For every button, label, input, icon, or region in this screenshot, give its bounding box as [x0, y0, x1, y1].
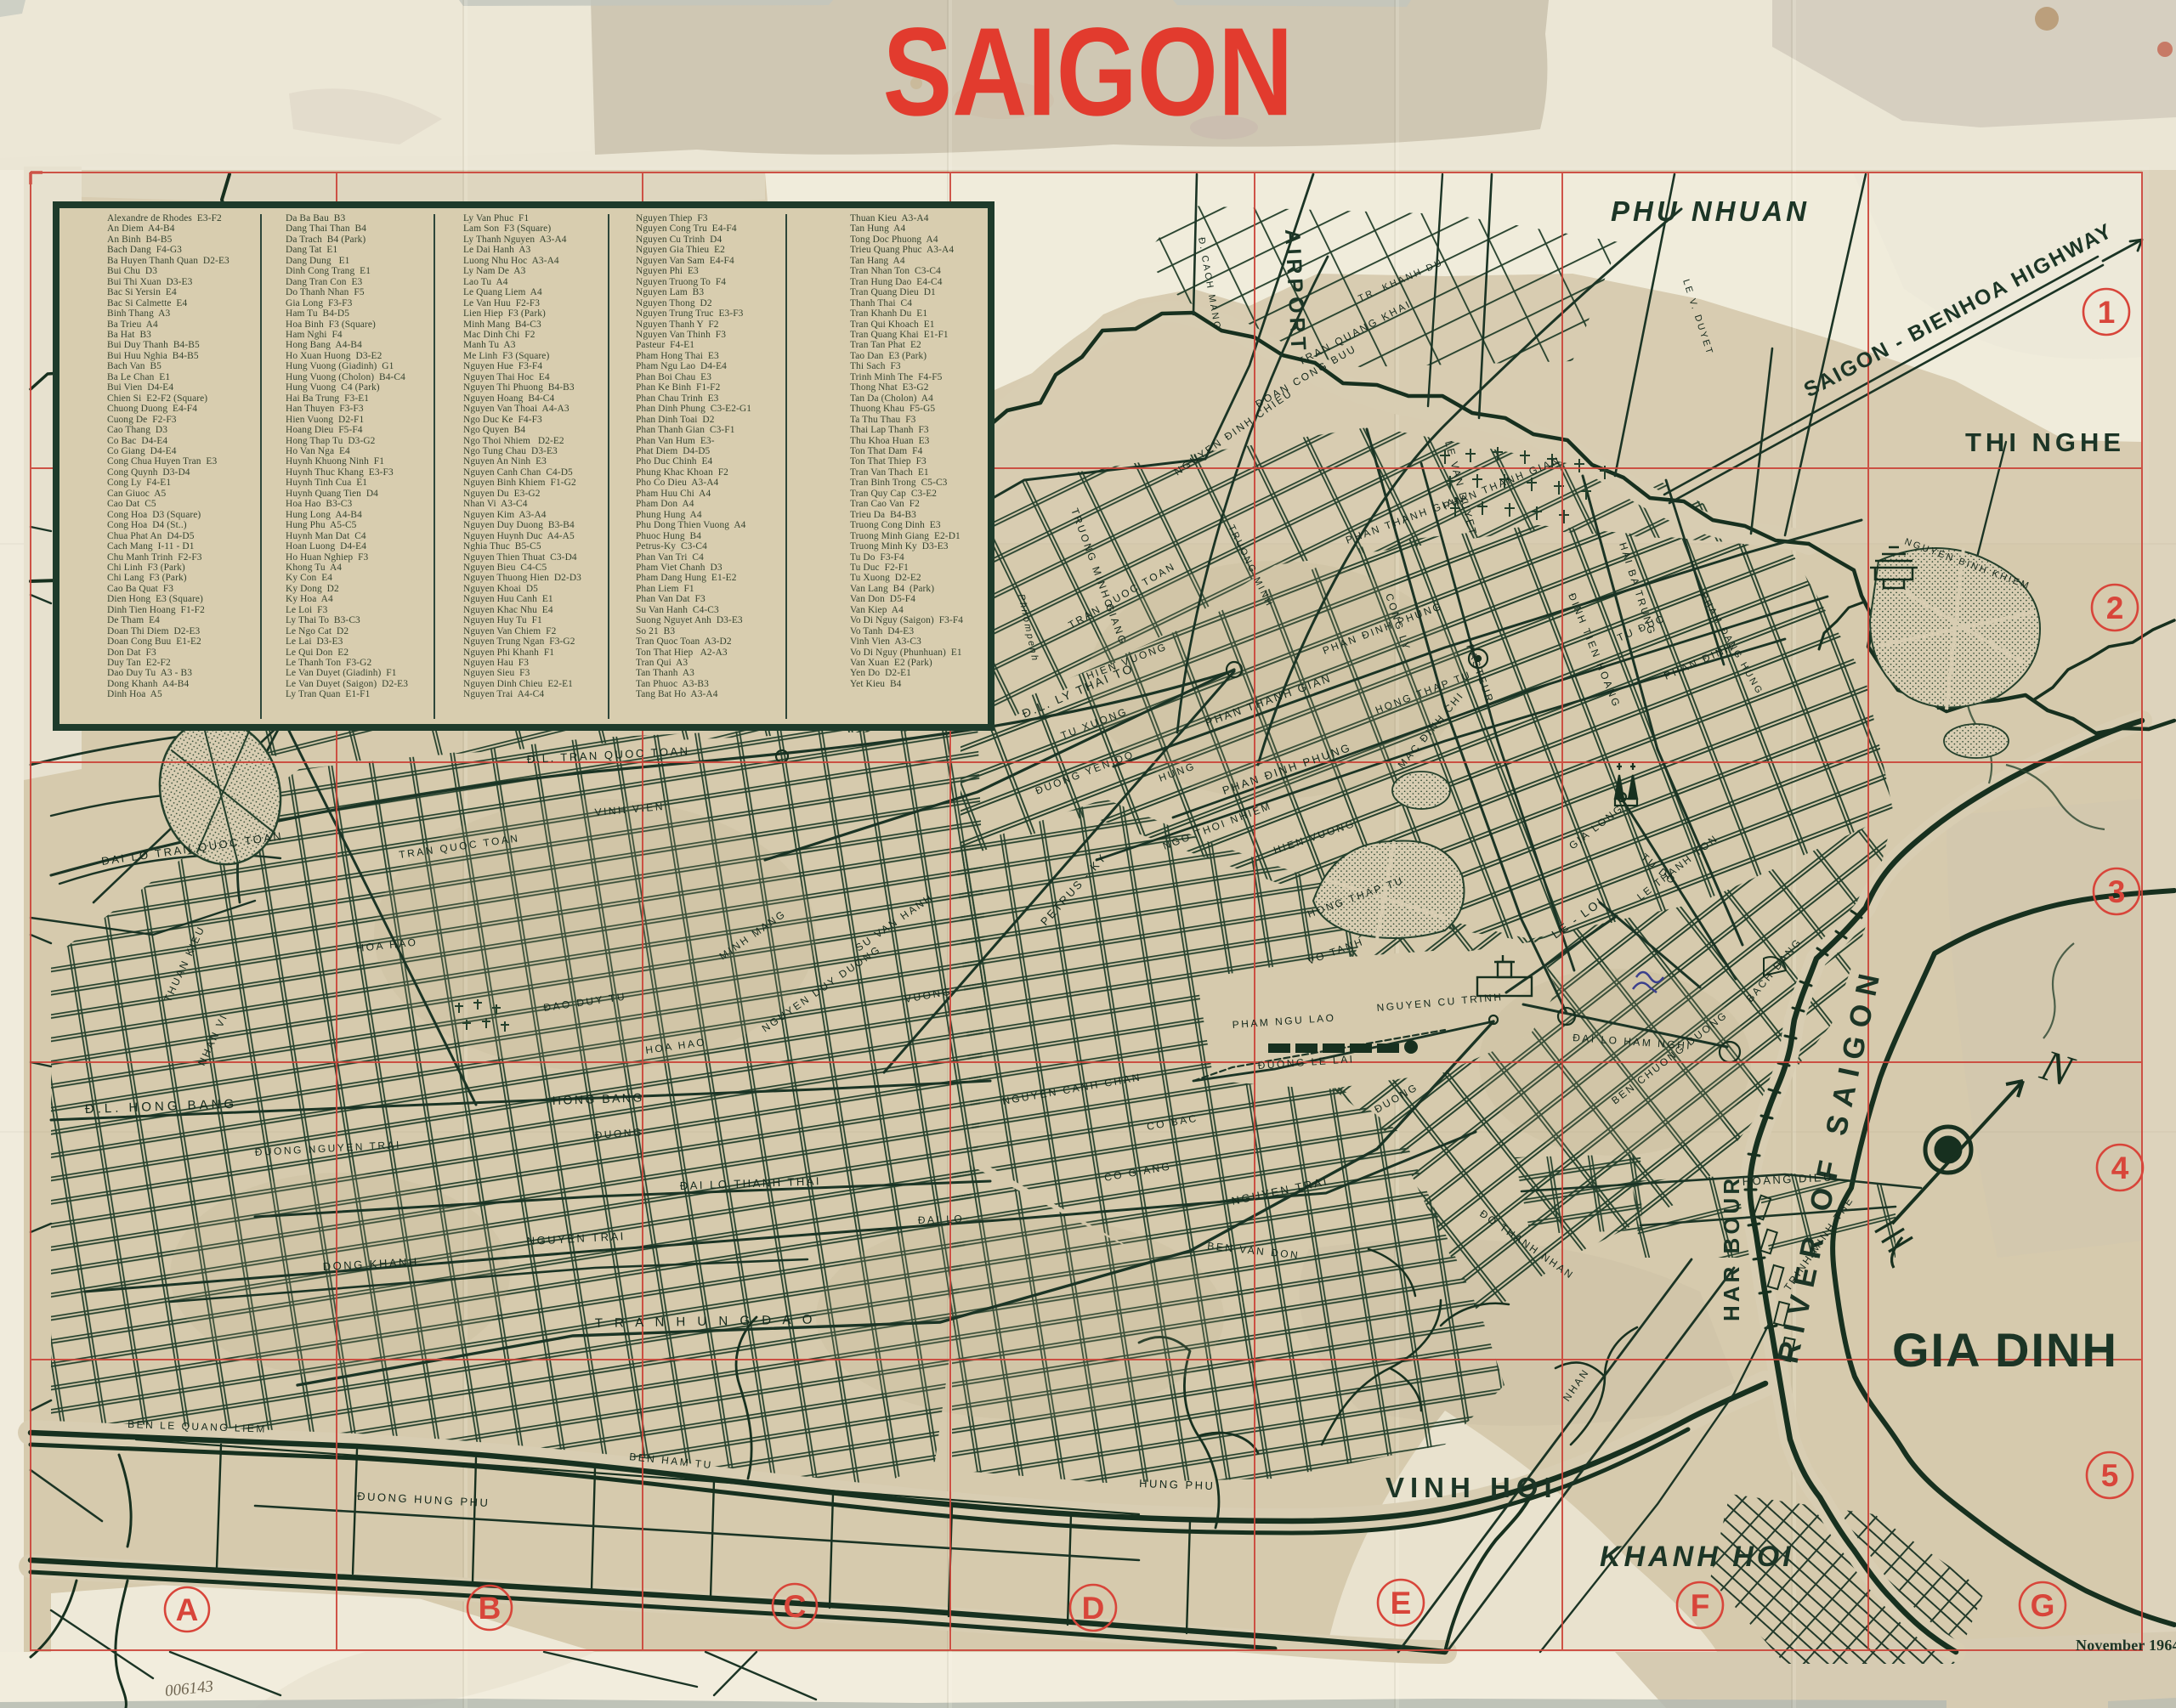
svg-text:B: B: [479, 1591, 501, 1626]
svg-text:G: G: [2031, 1588, 2055, 1623]
svg-text:November 1964: November 1964: [2076, 1637, 2176, 1654]
svg-text:2: 2: [2106, 591, 2124, 625]
svg-text:D: D: [1082, 1591, 1105, 1626]
svg-text:4: 4: [2111, 1151, 2129, 1185]
svg-text:ĐAI LO: ĐAI LO: [918, 1213, 965, 1226]
svg-text:THI NGHE: THI NGHE: [1965, 427, 2125, 457]
svg-text:E: E: [1391, 1586, 1412, 1620]
svg-text:A: A: [176, 1592, 199, 1627]
svg-text:KHANH HOI: KHANH HOI: [1600, 1541, 1794, 1573]
svg-text:3: 3: [2108, 874, 2126, 909]
svg-text:5: 5: [2101, 1458, 2119, 1493]
svg-text:VINH HOI: VINH HOI: [1385, 1472, 1558, 1503]
svg-text:1: 1: [2098, 295, 2116, 330]
svg-text:HUNG PHU: HUNG PHU: [1139, 1477, 1215, 1492]
svg-text:F: F: [1691, 1588, 1710, 1623]
svg-text:C: C: [784, 1589, 807, 1624]
svg-text:PHU NHUAN: PHU NHUAN: [1611, 195, 1810, 227]
svg-text:GIA DINH: GIA DINH: [1892, 1323, 2118, 1377]
svg-text:HAR BOUR: HAR BOUR: [1719, 1175, 1744, 1321]
